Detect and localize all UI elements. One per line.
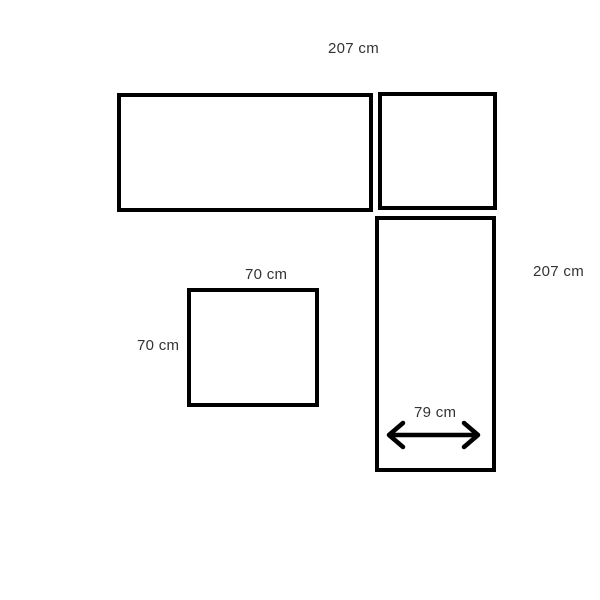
top-horizontal-section-rect	[117, 93, 373, 212]
ottoman-height-label: 70 cm	[137, 337, 179, 355]
ottoman-width-label: 70 cm	[245, 266, 287, 284]
top-width-label: 207 cm	[328, 40, 379, 58]
corner-section-rect	[378, 92, 497, 210]
sofa-dimension-diagram: 207 cm 207 cm 70 cm 70 cm 79 cm	[0, 0, 600, 600]
right-height-label: 207 cm	[533, 263, 584, 281]
double-arrow-icon	[385, 419, 482, 451]
ottoman-square-rect	[187, 288, 319, 407]
